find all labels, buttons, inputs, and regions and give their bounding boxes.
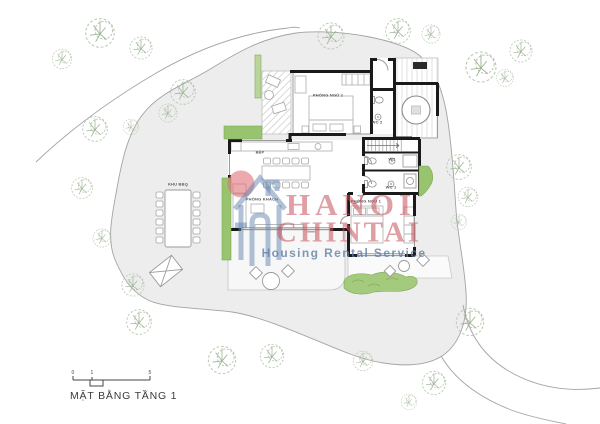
scale-bar-graphic <box>73 376 150 386</box>
dining-table-set <box>262 158 310 188</box>
room-label-wc2: WC 2 <box>372 120 383 125</box>
washer-icon <box>404 174 416 188</box>
tree-icon <box>422 25 440 43</box>
tree-icon <box>458 187 478 207</box>
planter-northwest <box>255 55 261 98</box>
room-label-kitchen: BẾP <box>256 150 265 155</box>
tree-icon <box>127 310 152 335</box>
tree-icon <box>93 229 111 247</box>
access-path-line-1 <box>463 305 600 389</box>
tree-icon <box>52 49 72 69</box>
scale-tick-1: 1 <box>91 370 94 376</box>
deck-entry <box>394 58 438 83</box>
room-label-wc1: WC 1 <box>386 185 397 190</box>
site-plan-graphic <box>0 0 600 424</box>
tree-icon <box>86 19 115 48</box>
wardrobe-bedroom2 <box>342 74 370 85</box>
toilet-icon <box>365 158 377 165</box>
tree-icon <box>401 394 417 410</box>
tree-icon <box>72 178 93 199</box>
tree-icon <box>208 346 235 373</box>
area-label-bbq: KHU BBQ <box>168 182 188 187</box>
tree-icon <box>422 371 445 394</box>
planter-north <box>224 126 262 139</box>
wardrobe-bedroom1 <box>404 207 414 243</box>
room-label-wc: WC <box>388 157 395 162</box>
round-bathtub <box>402 96 430 124</box>
bbq-table <box>165 190 191 247</box>
tree-icon <box>130 37 152 59</box>
toilet-icon <box>365 181 377 188</box>
tree-icon <box>260 344 283 367</box>
planter-west <box>222 178 231 260</box>
tree-icon <box>466 52 496 82</box>
room-label-bedroom2: PHÒNG NGỦ 2 <box>313 93 343 98</box>
tree-icon <box>386 19 411 44</box>
bed-double-bedroom2 <box>302 96 361 134</box>
patio <box>228 230 345 290</box>
toilet-icon <box>372 97 384 104</box>
scale-tick-0: 0 <box>72 370 75 376</box>
entry-doormat <box>413 62 427 69</box>
shower-tray <box>403 155 417 167</box>
scale-tick-5: 5 <box>149 370 152 376</box>
access-path-line-2 <box>441 356 566 424</box>
room-label-bedroom1: PHÒNG NGỦ 1 <box>351 199 381 204</box>
page-title: MẶT BẰNG TẦNG 1 <box>70 390 177 402</box>
bed-double-bedroom1 <box>351 206 383 243</box>
kitchen-counter <box>231 142 332 151</box>
room-label-living: PHÒNG KHÁCH <box>246 197 278 202</box>
tree-icon <box>510 40 532 62</box>
tree-icon <box>497 70 514 87</box>
desk-bedroom2 <box>295 76 306 93</box>
floor-plan-canvas: PHÒNG NGỦ 2 WC 2 BẾP PHÒNG KHÁCH WC WC 1… <box>0 0 600 424</box>
tree-icon <box>83 117 108 142</box>
